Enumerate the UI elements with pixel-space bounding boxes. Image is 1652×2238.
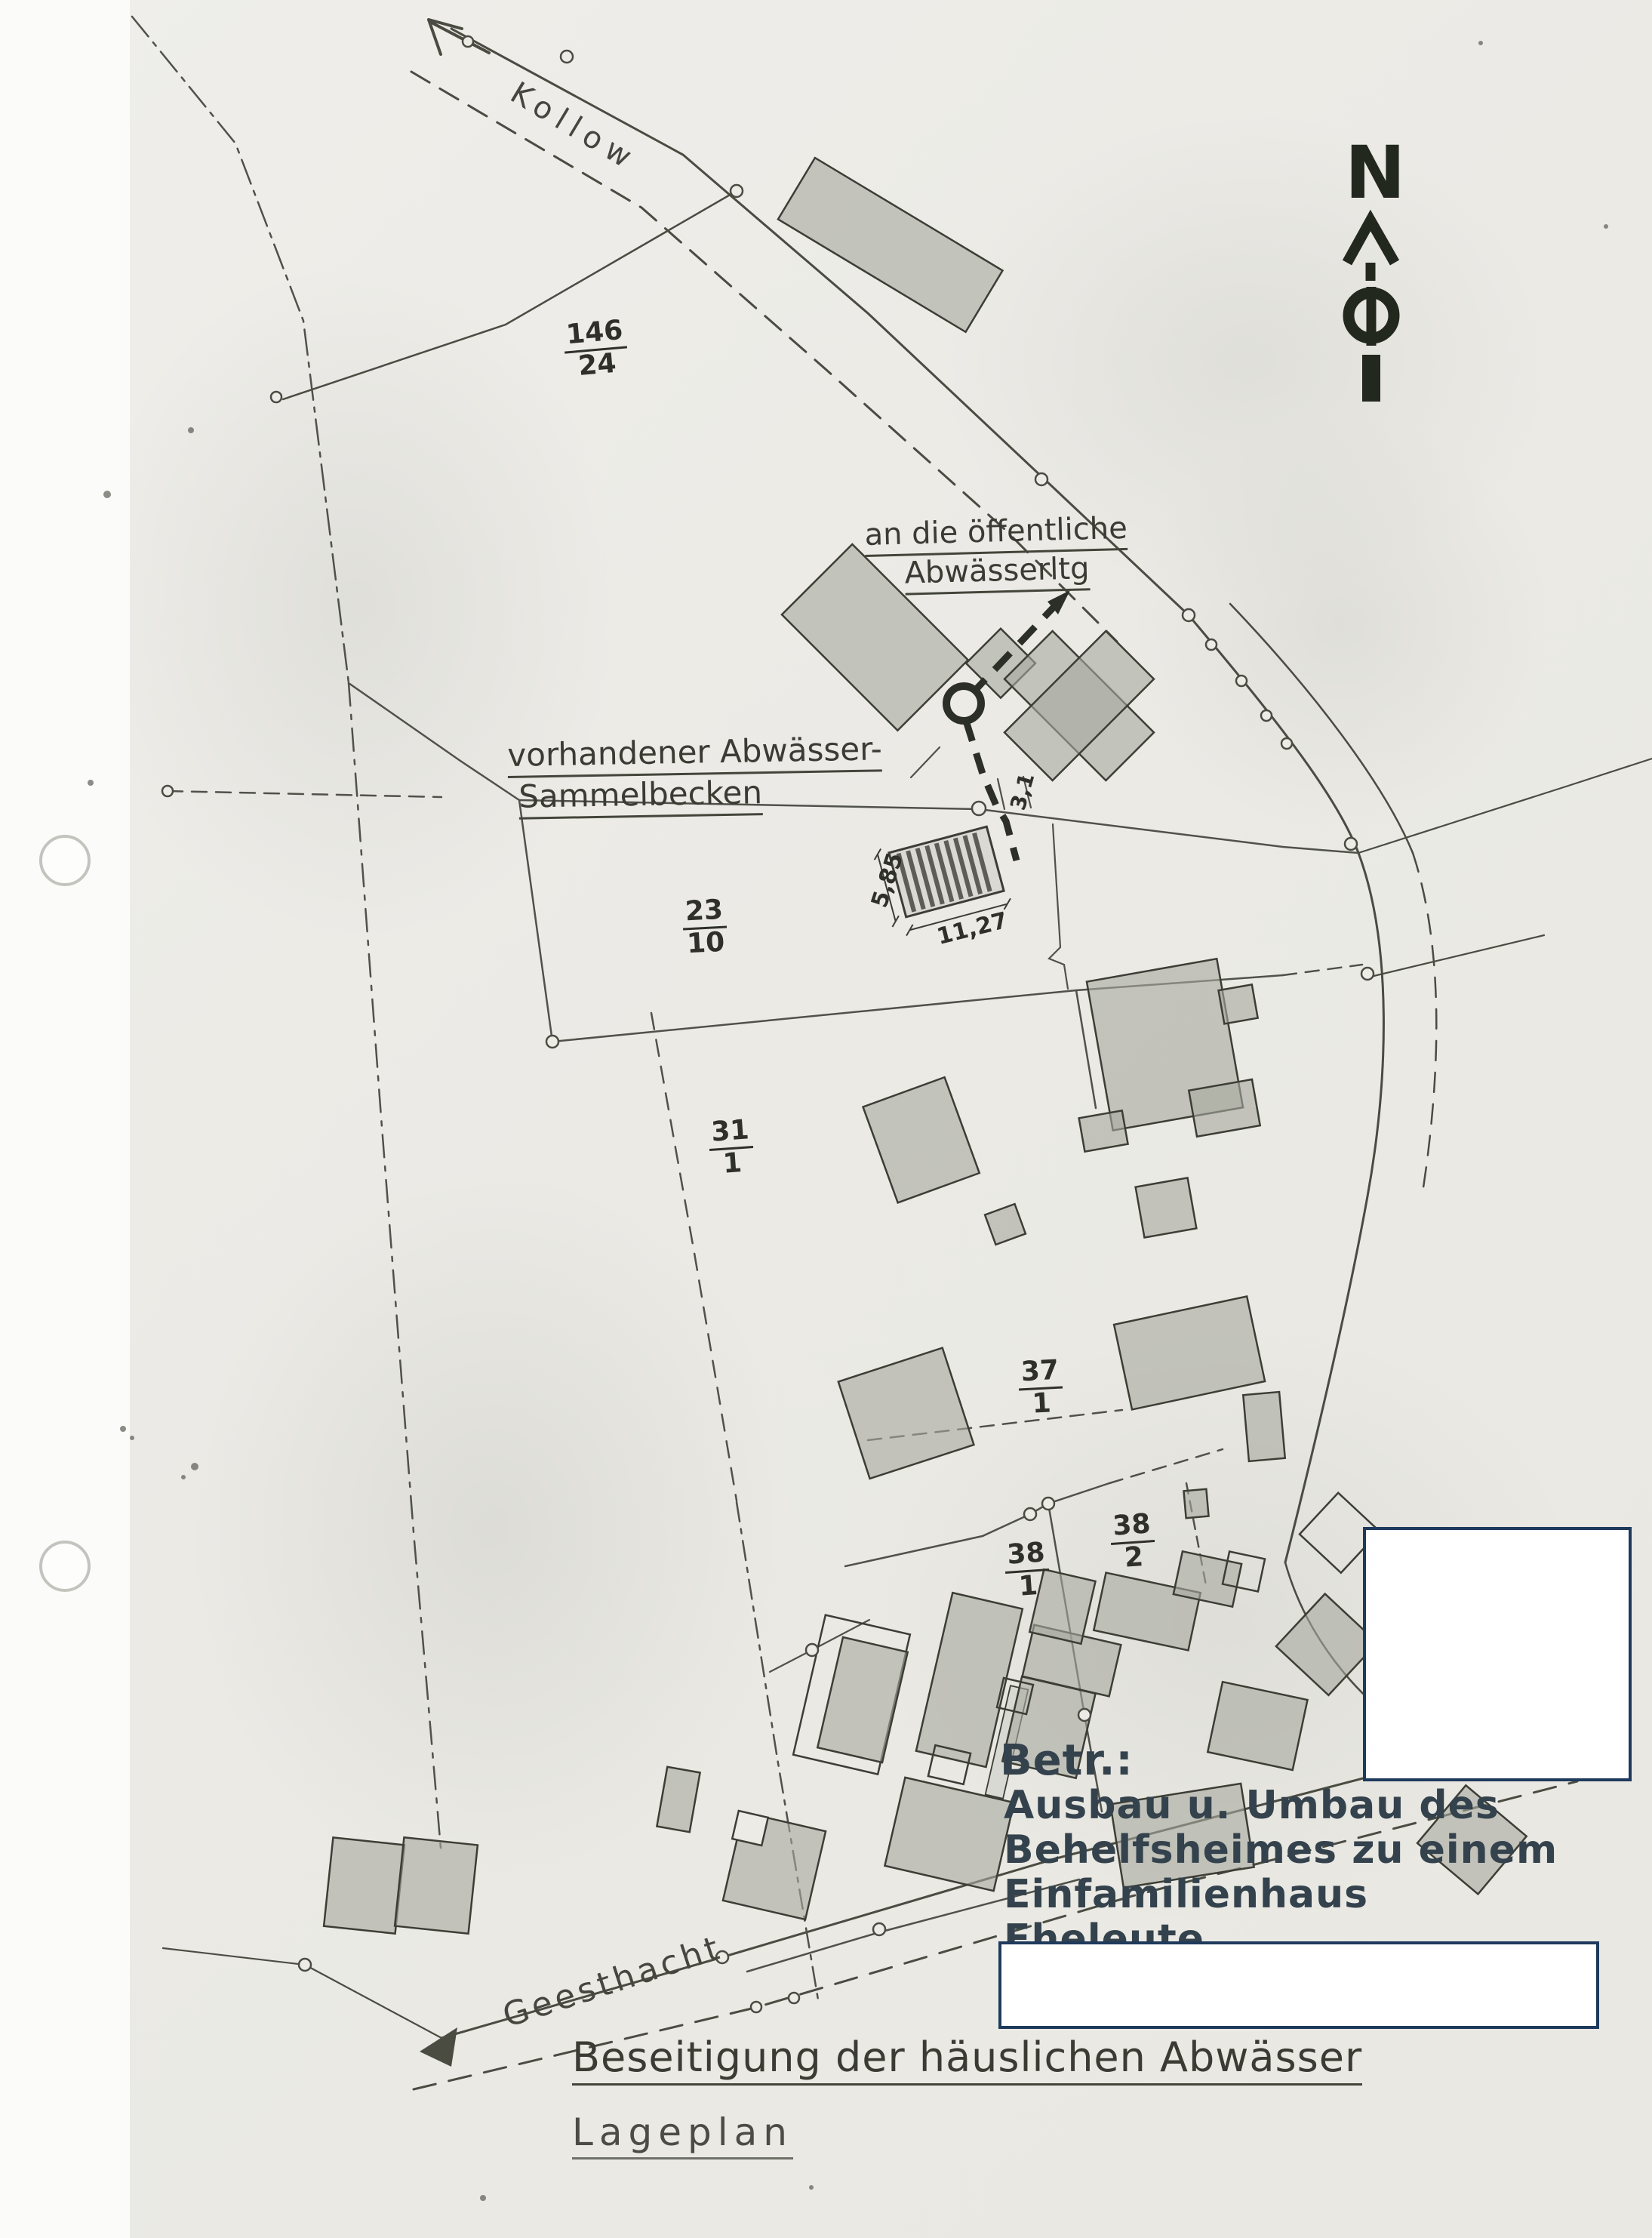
boundary-top-parcel xyxy=(283,191,737,399)
road-east-outer-dashed xyxy=(1413,853,1436,1193)
building xyxy=(985,1204,1026,1245)
building xyxy=(657,1767,700,1832)
boundary-dashdot-topleft xyxy=(132,17,349,683)
annotation-line: Abwässerltg xyxy=(904,551,1090,595)
annotation-public-sewer: an die öffentliche Abwässerltg xyxy=(864,511,1129,596)
building xyxy=(778,158,1003,332)
boundary-dashdot-bottom xyxy=(737,1502,819,2004)
building xyxy=(1219,984,1258,1024)
boundary-dashed-31 xyxy=(651,1013,737,1501)
site-plan-drawing: N xyxy=(0,0,1652,2238)
road-arrow-north-west xyxy=(429,20,489,54)
boundary-basin-east xyxy=(1049,824,1068,989)
boundary-right-edge xyxy=(1358,759,1652,977)
redaction-box-lower xyxy=(998,1941,1599,2029)
annotation-collection-basin: vorhandener Abwässer- Sammelbecken xyxy=(507,730,883,820)
building xyxy=(863,1077,980,1202)
building xyxy=(817,1637,907,1762)
punch-hole xyxy=(41,1542,89,1590)
annotation-line: an die öffentliche xyxy=(864,511,1128,557)
subject-line-2: Behelfsheimes zu einem xyxy=(1004,1827,1558,1873)
subject-line-3: Einfamilienhaus xyxy=(1004,1872,1368,1917)
parcel-number-38-1: 381 xyxy=(1003,1538,1051,1603)
parcel-number-31-1: 311 xyxy=(707,1116,755,1181)
manhole-circle xyxy=(946,686,981,721)
road-east-outer xyxy=(1230,604,1413,853)
building-notch xyxy=(732,1811,768,1846)
north-base-bar xyxy=(1362,355,1380,402)
punch-holes xyxy=(41,836,89,1590)
building xyxy=(324,1837,405,1933)
boundary xyxy=(349,683,519,800)
building xyxy=(1183,1489,1208,1518)
punch-hole xyxy=(41,836,89,885)
building xyxy=(1207,1682,1307,1770)
redaction-box-upper xyxy=(1363,1527,1632,1781)
north-arrow-symbol: N xyxy=(1345,131,1405,402)
parcel-number-146-24: 14624 xyxy=(562,316,630,383)
parcel-number-38-2: 382 xyxy=(1109,1510,1157,1575)
north-letter: N xyxy=(1345,131,1405,215)
boundary-dashdot-left xyxy=(349,683,441,1857)
building xyxy=(1189,1079,1260,1137)
building xyxy=(1114,1297,1265,1410)
subject-line-1: Ausbau u. Umbau des xyxy=(1004,1783,1500,1828)
parcel-number-37-1: 371 xyxy=(1017,1356,1064,1421)
buildings xyxy=(324,158,1527,1934)
plan-subtitle: Lageplan xyxy=(572,2110,793,2160)
building xyxy=(838,1348,974,1479)
plan-title: Beseitigung der häuslichen Abwässer xyxy=(572,2033,1362,2086)
boundary-38 xyxy=(845,1483,1109,1566)
boundary xyxy=(519,800,1096,1108)
subject-label: Betr.: xyxy=(1000,1736,1134,1785)
building xyxy=(1079,1110,1128,1151)
building xyxy=(1243,1392,1284,1461)
boundary-dashed xyxy=(168,791,441,797)
building xyxy=(395,1837,478,1934)
annotation-line: Sammelbecken xyxy=(518,774,763,820)
road-arrow-south-west xyxy=(420,2027,457,2067)
boundary-dashed xyxy=(1109,1449,1223,1483)
parcel-number-23-10: 2310 xyxy=(681,896,728,960)
building xyxy=(1136,1177,1197,1237)
label-leader-line xyxy=(911,747,940,777)
annotation-line: vorhandener Abwässer- xyxy=(507,730,882,778)
boundary-dashed xyxy=(1283,965,1362,975)
scanned-site-plan-page: N Kollow an die öffentliche Abwässerltg … xyxy=(0,0,1652,2238)
north-chevron xyxy=(1347,220,1395,263)
